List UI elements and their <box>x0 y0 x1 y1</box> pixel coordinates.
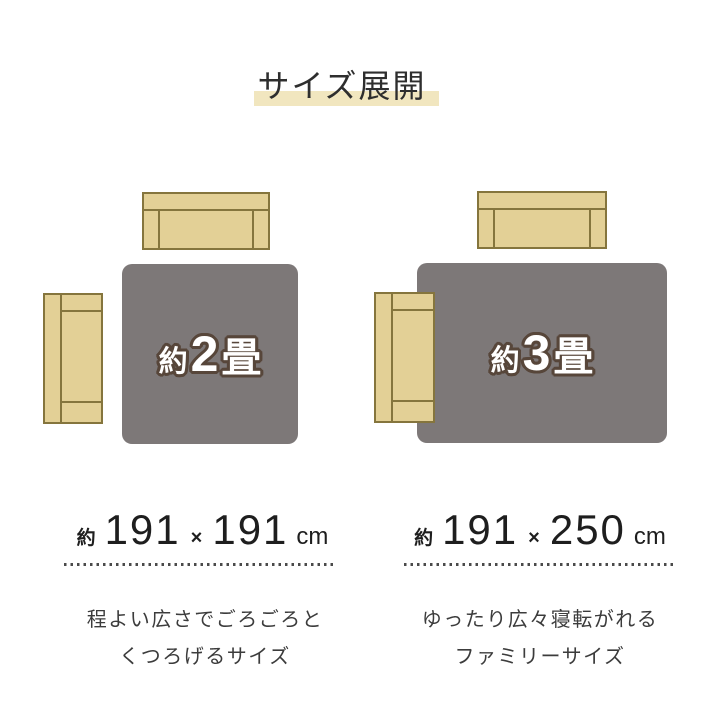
multiply-sign: × <box>191 527 203 550</box>
size-length: 191 <box>212 506 288 554</box>
size-length: 250 <box>550 506 626 554</box>
size-description-3jo: ゆったり広々寝転がれる ファミリーサイズ <box>370 602 710 676</box>
sofa-backrest-line <box>479 208 605 210</box>
label-approx: 約 <box>159 338 188 380</box>
description-line: 程よい広さでごろごろと <box>30 602 380 639</box>
sofa-armrest-line <box>60 401 101 403</box>
description-line: ファミリーサイズ <box>370 639 710 676</box>
sofa-backrest-line <box>144 209 268 211</box>
size-infographic: サイズ展開 約 2 畳 約 <box>0 0 720 720</box>
label-number: 3 <box>523 324 551 382</box>
size-approx: 約 <box>77 523 96 550</box>
size-text-2jo: 約 191 × 191 cm <box>30 506 375 554</box>
size-description-2jo: 程よい広さでごろごろと くつろげるサイズ <box>30 602 380 676</box>
description-line: ゆったり広々寝転がれる <box>370 602 710 639</box>
multiply-sign: × <box>528 527 540 550</box>
sofa-armrest-line <box>391 309 433 311</box>
dotted-divider <box>64 563 337 566</box>
size-unit: cm <box>296 523 328 551</box>
page-title: サイズ展開 <box>0 70 684 102</box>
sofa-armrest-line <box>391 400 433 402</box>
rug-size-label: 約 2 畳 <box>159 325 262 383</box>
size-width: 191 <box>105 506 181 554</box>
sofa-top-illustration <box>142 192 270 250</box>
size-unit: cm <box>634 523 666 551</box>
rug-2jo: 約 2 畳 <box>122 264 298 444</box>
label-approx: 約 <box>491 337 520 379</box>
size-width: 191 <box>442 506 518 554</box>
sofa-side-illustration <box>43 293 103 424</box>
rug-size-label: 約 3 畳 <box>491 324 594 382</box>
label-number: 2 <box>191 325 219 383</box>
label-tatami-unit: 畳 <box>553 324 593 382</box>
dotted-divider <box>404 563 677 566</box>
label-tatami-unit: 畳 <box>221 325 261 383</box>
sofa-armrest-line <box>158 209 160 248</box>
sofa-armrest-line <box>252 209 254 248</box>
size-text-3jo: 約 191 × 250 cm <box>372 506 708 554</box>
description-line: くつろげるサイズ <box>30 639 380 676</box>
sofa-armrest-line <box>589 208 591 247</box>
sofa-top-illustration <box>477 191 607 249</box>
sofa-side-illustration <box>374 292 435 423</box>
sofa-armrest-line <box>493 208 495 247</box>
size-approx: 約 <box>414 523 433 550</box>
page-title-text: サイズ展開 <box>257 68 426 104</box>
rug-3jo: 約 3 畳 <box>417 263 667 443</box>
sofa-armrest-line <box>60 310 101 312</box>
